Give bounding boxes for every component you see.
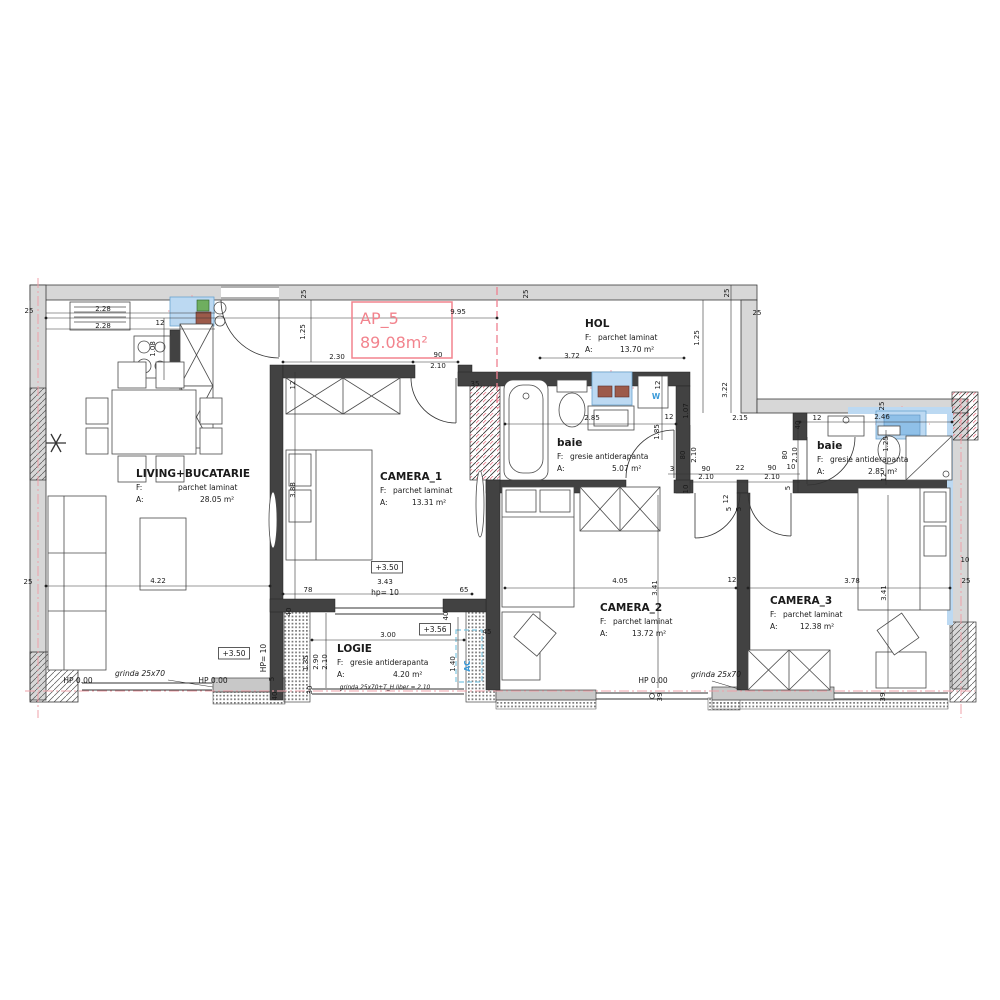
- room-area-value: 5.07 m²: [612, 464, 641, 473]
- tv: [269, 492, 277, 548]
- toilet: [559, 393, 585, 427]
- dimension-label: 12: [654, 381, 662, 390]
- dimension-label: 5: [735, 507, 743, 511]
- chair: [118, 362, 146, 388]
- dimension-label: 3.41: [880, 585, 888, 601]
- kitchen-sink: [214, 302, 226, 314]
- room-area-label: A:: [337, 670, 345, 679]
- dimension-label: 3.41: [651, 580, 659, 596]
- dimension-label: 12: [728, 576, 737, 584]
- toilet-tank: [557, 380, 587, 392]
- dimension-label: 3.88: [289, 482, 297, 498]
- dimension-label: 12: [665, 413, 674, 421]
- annotation-label: grinda 25x70+T_H liber = 2.10: [340, 685, 431, 691]
- dimension-label: 90: [768, 464, 777, 472]
- annotation-label: AC: [463, 660, 472, 672]
- room-name-camera3: CAMERA_3: [770, 595, 832, 607]
- dimension-label: 25: [522, 290, 530, 299]
- dimension-label: 1.08: [149, 341, 157, 357]
- entrance-door: [221, 300, 279, 358]
- chair: [86, 428, 108, 454]
- dimension-label: 1.07: [682, 403, 690, 419]
- room-name-camera1: CAMERA_1: [380, 471, 442, 483]
- dimension-label: 80: [679, 451, 687, 460]
- dimension-label: 25: [300, 290, 308, 299]
- annotation-label: W: [652, 392, 661, 401]
- pillow: [540, 490, 570, 512]
- dimension-label: 25: [25, 307, 34, 315]
- room-finish-value: parchet laminat: [783, 610, 843, 619]
- dimension-label: 1.35: [302, 655, 310, 671]
- dimension-label: 5: [784, 486, 792, 490]
- camera3-furniture: [748, 488, 950, 690]
- room-finish-value: gresie antiderapanta: [350, 658, 428, 667]
- room-name-logie: LOGIE: [337, 643, 372, 655]
- dimension-label: 30: [306, 686, 314, 695]
- sink-cabinet: [828, 416, 864, 436]
- dimension-label: 12: [880, 473, 888, 482]
- dimension-label: 12: [156, 319, 165, 327]
- apartment-id: AP_5: [360, 309, 399, 329]
- dimension-label: 80: [781, 451, 789, 460]
- dimension-label: 2.15: [732, 414, 748, 422]
- annotation-label: HP 0.00: [198, 676, 227, 685]
- floor-plan-page: AP_5 89.08m² LIVING+BUCATARIEF:parchet l…: [0, 0, 1000, 1000]
- tv: [476, 471, 484, 537]
- dimension-label: 10: [787, 463, 796, 471]
- desk: [876, 652, 926, 688]
- pillow: [924, 492, 946, 522]
- dimension-label: 2.90: [312, 654, 320, 670]
- dimension-label: 12: [722, 495, 730, 504]
- dimension-label: 25: [962, 577, 971, 585]
- dimension-label: 39: [879, 693, 887, 702]
- room-finish-label: F:: [585, 333, 591, 342]
- dimension-label: 9.95: [450, 308, 466, 316]
- room-finish-value: parchet laminat: [178, 483, 238, 492]
- dimension-label: 1.25: [693, 330, 701, 346]
- room-name-hol: HOL: [585, 318, 610, 330]
- dimension-label: 5: [725, 507, 733, 511]
- dimension-label: 2.85: [584, 414, 600, 422]
- room-area-label: A:: [585, 345, 593, 354]
- room-area-label: A:: [770, 622, 778, 631]
- dimension-label: 40: [271, 692, 279, 701]
- room-finish-value: parchet laminat: [598, 333, 658, 342]
- dimension-label: 2.10: [430, 362, 446, 370]
- dimension-label: 1.40: [449, 656, 457, 672]
- room-area-label: A:: [817, 467, 825, 476]
- chair: [200, 398, 222, 424]
- room-area-label: A:: [557, 464, 565, 473]
- annotation-label: grinda 25x70: [115, 669, 165, 678]
- logie-rail: [335, 608, 443, 614]
- dimension-label: 39: [656, 693, 664, 702]
- dimension-label: 2.30: [329, 353, 345, 361]
- pillow: [289, 454, 311, 486]
- entrance-opening: [221, 286, 279, 299]
- room-finish-label: F:: [136, 483, 142, 492]
- dimension-label: 1.25: [882, 436, 890, 452]
- dimension-label: 40: [794, 421, 802, 430]
- dimension-label: 25: [24, 578, 33, 586]
- dimension-label: 4.05: [612, 577, 628, 585]
- dimension-label: 2.10: [690, 447, 698, 463]
- dimension-label: 12: [289, 381, 297, 390]
- annotation-label: HP 0.00: [63, 676, 92, 685]
- dimension-label: 90: [434, 351, 443, 359]
- dimension-label: 12: [813, 414, 822, 422]
- pillow: [506, 490, 536, 512]
- camera1-furniture: [286, 378, 400, 560]
- annotation-label: +3.50: [223, 649, 246, 658]
- dimension-label: 5: [268, 677, 276, 681]
- room-area-value: 28.05 m²: [200, 495, 234, 504]
- room-finish-label: F:: [557, 452, 563, 461]
- room-area-label: A:: [380, 498, 388, 507]
- room-finish-value: parchet laminat: [393, 486, 453, 495]
- pillow: [924, 526, 946, 556]
- shaft-hatch: [470, 386, 500, 480]
- dimension-label: 1.25: [299, 324, 307, 340]
- room-area-value: 13.31 m²: [412, 498, 446, 507]
- dimension-label: 45: [483, 628, 492, 636]
- room-finish-label: F:: [770, 610, 776, 619]
- annotation-label: +3.56: [424, 625, 447, 634]
- dimension-label: 65: [460, 586, 469, 594]
- dimension-label: 2.10: [321, 654, 329, 670]
- floor-plan-canvas: AP_5 89.08m² LIVING+BUCATARIEF:parchet l…: [0, 0, 1000, 1000]
- room-finish-label: F:: [380, 486, 386, 495]
- wall-hatch-bottom-right: [950, 622, 976, 702]
- dimension-label: 22: [736, 464, 745, 472]
- toilet-tank: [878, 426, 900, 435]
- annotation-label: +3.50: [376, 563, 399, 572]
- dimension-label: 3.00: [380, 631, 396, 639]
- dimension-label: 25: [878, 402, 886, 411]
- chair: [86, 398, 108, 424]
- room-area-value: 12.38 m²: [800, 622, 834, 631]
- dimension-label: 25: [723, 289, 731, 298]
- dimension-label: 2.10: [698, 473, 714, 481]
- apartment-area: 89.08m²: [360, 333, 428, 352]
- room-area-value: 13.70 m²: [620, 345, 654, 354]
- dimension-label: 3.22: [721, 382, 729, 398]
- room-finish-value: gresie antiderapanta: [570, 452, 648, 461]
- apartment-label: AP_5 89.08m²: [352, 302, 452, 358]
- annotation-label: grinda 25x70: [691, 670, 741, 679]
- sofa: [48, 496, 106, 670]
- dimension-label: 2.28: [95, 305, 111, 313]
- chair: [200, 428, 222, 454]
- room-name-baie2: baie: [817, 440, 842, 452]
- room-finish-value: gresie antiderapanta: [830, 455, 908, 464]
- chair: [156, 362, 184, 388]
- room-area-label: A:: [600, 629, 608, 638]
- room-finish-value: parchet laminat: [613, 617, 673, 626]
- annotation-label: HP 0.00: [638, 676, 667, 685]
- dimension-label: 40: [442, 612, 450, 621]
- room-name-baie1: baie: [557, 437, 582, 449]
- dimension-label: 3: [670, 465, 674, 473]
- dimension-label: 3.72: [564, 352, 580, 360]
- dimension-label: 2.10: [791, 447, 799, 463]
- room-name-camera2: CAMERA_2: [600, 602, 662, 614]
- dimension-label: 40: [285, 608, 293, 617]
- camera2-door: [695, 493, 740, 538]
- dining-table: [112, 390, 196, 454]
- dimension-label: 25: [753, 309, 762, 317]
- dimension-label: 4.22: [150, 577, 166, 585]
- dimension-label: 2.46: [874, 413, 890, 421]
- room-area-value: 13.72 m²: [632, 629, 666, 638]
- room-area-value: 4.20 m²: [393, 670, 422, 679]
- dimension-label: 90: [702, 465, 711, 473]
- room-name-living: LIVING+BUCATARIE: [136, 468, 250, 480]
- dimension-label: 78: [304, 586, 313, 594]
- dimension-label: 10: [961, 556, 970, 564]
- annotation-label: hp= 10: [371, 588, 399, 597]
- desk-chair: [877, 613, 919, 655]
- wall-hatch-top-right: [952, 392, 978, 440]
- dimension-label: 2.10: [764, 473, 780, 481]
- dimension-label: 35: [471, 380, 480, 388]
- room-finish-label: F:: [337, 658, 343, 667]
- annotation-label: HP= 10: [259, 644, 268, 673]
- light-symbol: [46, 434, 66, 452]
- room-area-label: A:: [136, 495, 144, 504]
- dimension-label: 3.43: [377, 578, 393, 586]
- camera2-furniture: [502, 487, 660, 680]
- camera1-door: [411, 378, 456, 423]
- camera3-door: [748, 493, 791, 536]
- room-finish-label: F:: [600, 617, 606, 626]
- dimension-label: 2.28: [95, 322, 111, 330]
- dimension-label: 3.78: [844, 577, 860, 585]
- dimension-label: 1.85: [653, 424, 661, 440]
- room-finish-label: F:: [817, 455, 823, 464]
- dimension-label: 10: [682, 485, 690, 494]
